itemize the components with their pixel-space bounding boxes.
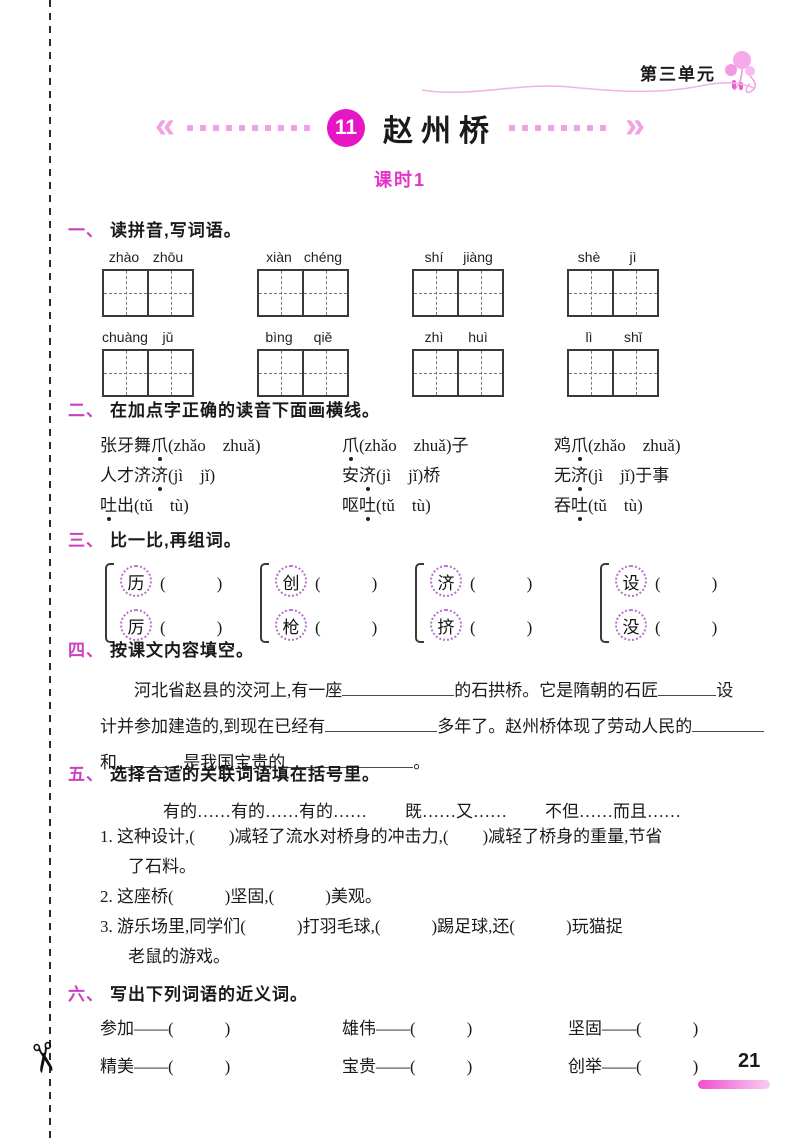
section-conjunctions: 五、选择合适的关联词语填在括号里。 有的……有的……有的…… 既……又…… 不但… — [68, 760, 764, 972]
brace — [105, 563, 114, 643]
grid-cell — [569, 351, 612, 395]
answer-paren: ( ) — [655, 613, 717, 638]
item-text: (zhǎo zhuǎ) — [588, 436, 681, 455]
pinyin-syllable: jì — [611, 249, 655, 269]
grid-cell — [302, 351, 347, 395]
page-number: 21 — [738, 1050, 760, 1073]
circled-character: 历 — [120, 565, 152, 597]
synonym-item: 雄伟——( ) — [342, 1017, 568, 1041]
fill-blank — [658, 681, 716, 696]
pinyin-syllable: jǔ — [146, 329, 190, 349]
page-number-bar — [698, 1080, 770, 1089]
compare-pair-group: 济( ) 挤( ) — [415, 563, 600, 643]
item-text: (jì jǐ) — [168, 466, 215, 485]
section-number: 二、 — [68, 401, 104, 420]
item-text: 无 — [554, 466, 571, 485]
item-text: (zhǎo zhuǎ)子 — [359, 436, 469, 455]
grid-cell — [414, 271, 457, 315]
section-number: 六、 — [68, 985, 104, 1004]
grid-cell — [569, 271, 612, 315]
dotted-character: 吐 — [571, 496, 588, 515]
left-chevrons-icon: « — [155, 107, 175, 143]
pinyin-syllable: jiàng — [456, 249, 500, 269]
lesson-title-row: « 11 赵州桥 » — [0, 106, 800, 150]
grid-cell — [104, 271, 147, 315]
reading-choice-item: 呕吐(tǔ tù) — [342, 491, 554, 521]
paragraph-text: 计并参加建造的,到现在已经有 — [100, 717, 325, 736]
section-number: 四、 — [68, 641, 104, 660]
grid-cell — [457, 271, 502, 315]
synonym-item: 创举——( ) — [568, 1055, 764, 1079]
paragraph-text: 多年了。赵州桥体现了劳动人民的 — [437, 717, 692, 736]
pinyin-word-block: shíjiàng — [412, 249, 500, 317]
writing-grid — [257, 349, 349, 397]
pinyin-word-block: zhàozhōu — [102, 249, 190, 317]
section-heading: 二、在加点字正确的读音下面画横线。 — [68, 396, 764, 421]
item-text: (tǔ tù) — [376, 496, 431, 515]
item-text: (tǔ tù) — [588, 496, 643, 515]
reading-choice-item: 人才济济(jì jǐ) — [100, 461, 342, 491]
compare-pair-group: 历( ) 厉( ) — [105, 563, 260, 643]
section-compare-words: 三、比一比,再组词。 历( ) 厉( ) 创( ) 枪( ) 济( ) 挤( ) — [68, 526, 764, 643]
session-label: 课时1 — [0, 166, 800, 192]
synonym-item: 精美——( ) — [100, 1055, 342, 1079]
compare-pair-group: 设( ) 没( ) — [600, 563, 764, 643]
paragraph-text: 的石拱桥。它是隋朝的石匠 — [454, 681, 658, 700]
dotted-character: 吐 — [359, 496, 376, 515]
pinyin-syllable: chuàng — [102, 329, 146, 349]
pinyin-word-block: xiànchéng — [257, 249, 345, 317]
pinyin-syllable: bìng — [257, 329, 301, 349]
exercise-item-line: 老鼠的游戏。 — [128, 942, 764, 972]
item-text: 出(tǔ tù) — [117, 496, 189, 515]
writing-grid — [257, 269, 349, 317]
conjunction-options: 有的……有的……有的…… 既……又…… 不但……而且…… — [163, 797, 764, 822]
conjunction-option: 不但……而且…… — [545, 797, 681, 822]
section-heading-text: 比一比,再组词。 — [110, 531, 242, 550]
section-heading: 一、读拼音,写词语。 — [68, 216, 764, 241]
grid-cell — [414, 351, 457, 395]
dotted-character: 爪 — [151, 436, 168, 455]
reading-choice-item: 无济(jì jǐ)于事 — [554, 461, 764, 491]
section-number: 一、 — [68, 221, 104, 240]
synonym-item: 参加——( ) — [100, 1017, 342, 1041]
section-heading-text: 按课文内容填空。 — [110, 641, 254, 660]
answer-paren: ( ) — [470, 613, 532, 638]
grid-cell — [259, 271, 302, 315]
pinyin-syllable: xiàn — [257, 249, 301, 269]
scissors-icon: ✂ — [20, 1038, 65, 1078]
section-heading: 四、按课文内容填空。 — [68, 636, 764, 661]
section-underline-reading: 二、在加点字正确的读音下面画横线。 张牙舞爪(zhǎo zhuǎ) 爪(zhǎo… — [68, 396, 764, 521]
pinyin-syllable: zhōu — [146, 249, 190, 269]
writing-grid — [102, 349, 194, 397]
grid-cell — [147, 271, 192, 315]
answer-paren: ( ) — [655, 569, 717, 594]
item-text: 安 — [342, 466, 359, 485]
reading-choice-item: 爪(zhǎo zhuǎ)子 — [342, 431, 554, 461]
grid-cell — [302, 271, 347, 315]
circled-character: 创 — [275, 565, 307, 597]
writing-grid — [102, 269, 194, 317]
section-heading-text: 写出下列词语的近义词。 — [110, 985, 308, 1004]
lesson-number-badge: 11 — [327, 109, 365, 147]
grid-cell — [259, 351, 302, 395]
item-text: 呕 — [342, 496, 359, 515]
item-text: 吞 — [554, 496, 571, 515]
item-text: 张牙舞 — [100, 436, 151, 455]
pinyin-syllable: lì — [567, 329, 611, 349]
fill-blank — [325, 717, 437, 732]
conjunction-option: 有的……有的……有的…… — [163, 797, 367, 822]
section-heading-text: 读拼音,写词语。 — [110, 221, 242, 240]
pinyin-word-block: shèjì — [567, 249, 655, 317]
paragraph-text: 设 — [716, 681, 733, 700]
writing-grid — [412, 269, 504, 317]
reading-choice-item: 吞吐(tǔ tù) — [554, 491, 764, 521]
grid-cell — [612, 271, 657, 315]
section-number: 三、 — [68, 531, 104, 550]
pinyin-syllable: zhào — [102, 249, 146, 269]
section-heading-text: 在加点字正确的读音下面画横线。 — [110, 401, 380, 420]
exercise-item-line: 1. 这种设计,( )减轻了流水对桥身的冲击力,( )减轻了桥身的重量,节省 — [100, 822, 764, 852]
answer-paren: ( ) — [315, 613, 377, 638]
brace — [600, 563, 609, 643]
pinyin-word-block: lìshǐ — [567, 329, 655, 397]
section-heading: 三、比一比,再组词。 — [68, 526, 764, 551]
grid-cell — [147, 351, 192, 395]
grid-cell — [457, 351, 502, 395]
reading-choice-item: 安济(jì jǐ)桥 — [342, 461, 554, 491]
paragraph-text: 河北省赵县的洨河上,有一座 — [134, 681, 342, 700]
section-heading: 六、写出下列词语的近义词。 — [68, 980, 764, 1005]
lesson-title: 赵州桥 — [383, 106, 497, 150]
grid-cell — [104, 351, 147, 395]
writing-grid — [567, 349, 659, 397]
pinyin-syllable: zhì — [412, 329, 456, 349]
dotted-character: 爪 — [571, 436, 588, 455]
pinyin-syllable: shè — [567, 249, 611, 269]
pinyin-word-block: chuàngjǔ — [102, 329, 190, 397]
exercise-item-line: 2. 这座桥( )坚固,( )美观。 — [100, 882, 764, 912]
answer-paren: ( ) — [160, 569, 222, 594]
right-dotted-line — [509, 125, 613, 131]
dotted-character: 济 — [151, 466, 168, 485]
grid-cell — [612, 351, 657, 395]
reading-choice-item: 鸡爪(zhǎo zhuǎ) — [554, 431, 764, 461]
answer-paren: ( ) — [160, 613, 222, 638]
circled-character: 济 — [430, 565, 462, 597]
exercise-item-line: 3. 游乐场里,同学们( )打羽毛球,( )踢足球,还( )玩猫捉 — [100, 912, 764, 942]
pinyin-word-block: zhìhuì — [412, 329, 500, 397]
answer-paren: ( ) — [315, 569, 377, 594]
pinyin-syllable: qiě — [301, 329, 345, 349]
pinyin-syllable: huì — [456, 329, 500, 349]
pinyin-syllable: shǐ — [611, 329, 655, 349]
section-synonyms: 六、写出下列词语的近义词。 参加——( ) 雄伟——( ) 坚固——( ) 精美… — [68, 980, 764, 1079]
reading-choice-item: 吐出(tǔ tù) — [100, 491, 342, 521]
section-heading-text: 选择合适的关联词语填在括号里。 — [110, 765, 380, 784]
brace — [260, 563, 269, 643]
left-dotted-line — [187, 125, 315, 131]
fill-blank — [692, 717, 764, 732]
item-text: (jì jǐ)于事 — [588, 466, 669, 485]
pinyin-word-block: bìngqiě — [257, 329, 345, 397]
pinyin-syllable: shí — [412, 249, 456, 269]
section-read-pinyin: 一、读拼音,写词语。 zhàozhōu xiànchéng shíjiàng s… — [68, 216, 764, 397]
writing-grid — [412, 349, 504, 397]
item-text: 鸡 — [554, 436, 571, 455]
item-text: 人才济 — [100, 466, 151, 485]
answer-paren: ( ) — [470, 569, 532, 594]
synonym-item: 宝贵——( ) — [342, 1055, 568, 1079]
paragraph-line: 计并参加建造的,到现在已经有多年了。赵州桥体现了劳动人民的 — [100, 709, 764, 745]
item-text: (jì jǐ)桥 — [376, 466, 440, 485]
compare-pair-group: 创( ) 枪( ) — [260, 563, 415, 643]
dotted-character: 吐 — [100, 496, 117, 515]
reading-choice-item: 张牙舞爪(zhǎo zhuǎ) — [100, 431, 342, 461]
pinyin-syllable: chéng — [301, 249, 345, 269]
header-wave-line — [420, 72, 770, 100]
dotted-character: 济 — [571, 466, 588, 485]
brace — [415, 563, 424, 643]
paragraph-line: 河北省赵县的洨河上,有一座的石拱桥。它是隋朝的石匠设 — [100, 673, 764, 709]
section-heading: 五、选择合适的关联词语填在括号里。 — [68, 760, 764, 785]
item-text: (zhǎo zhuǎ) — [168, 436, 261, 455]
conjunction-option: 既……又…… — [405, 797, 507, 822]
right-chevrons-icon: » — [625, 107, 645, 143]
dotted-character: 济 — [359, 466, 376, 485]
exercise-item-line: 了石料。 — [128, 852, 764, 882]
dotted-character: 爪 — [342, 436, 359, 455]
synonym-item: 坚固——( ) — [568, 1017, 764, 1041]
section-number: 五、 — [68, 765, 104, 784]
fill-blank — [342, 681, 454, 696]
writing-grid — [567, 269, 659, 317]
circled-character: 设 — [615, 565, 647, 597]
